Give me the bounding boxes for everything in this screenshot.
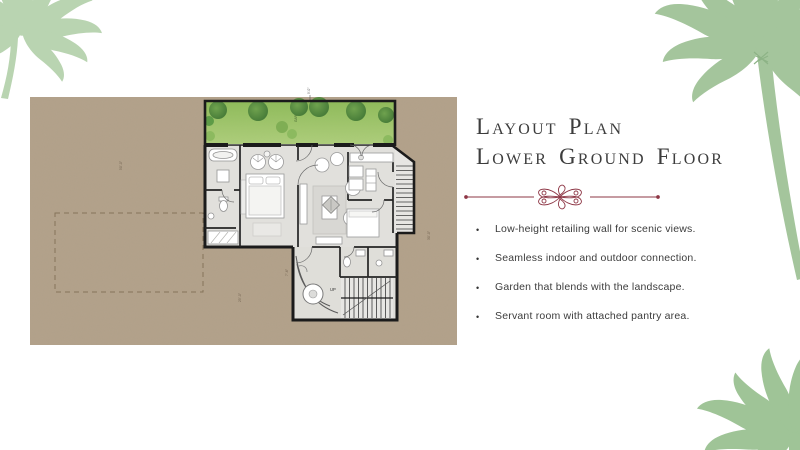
title-line-1: Layout Plan — [476, 112, 786, 142]
palm-tree-top-left-icon — [0, 0, 102, 99]
palm-tree-bottom-right-icon — [695, 347, 800, 450]
feature-text: Low-height retailing wall for scenic vie… — [495, 222, 696, 237]
bullet-icon: • — [476, 280, 484, 296]
title-line-2: Lower Ground Floor — [476, 142, 786, 172]
dimension-label: 25'-0" — [238, 293, 242, 302]
list-item: • Servant room with attached pantry area… — [476, 309, 746, 325]
bullet-icon: • — [476, 309, 484, 325]
list-item: • Garden that blends with the landscape. — [476, 280, 746, 296]
slide: 50'-0" 25'-0" 30'-0" 7'-6" GARDEN 9'- — [0, 0, 800, 450]
dimension-label: 7'-6" — [285, 269, 289, 276]
feature-text: Garden that blends with the landscape. — [495, 280, 685, 295]
bullet-icon: • — [476, 222, 484, 238]
dimension-label: 50'-0" — [119, 161, 123, 170]
feature-text: Seamless indoor and outdoor connection. — [495, 251, 697, 266]
feature-text: Servant room with attached pantry area. — [495, 309, 690, 324]
up-label: UP — [330, 287, 336, 292]
servant-room-bed — [347, 209, 379, 237]
page-title: Layout Plan Lower Ground Floor — [476, 112, 786, 172]
list-item: • Seamless indoor and outdoor connection… — [476, 251, 746, 267]
feature-list: • Low-height retailing wall for scenic v… — [476, 222, 746, 338]
flourish-ornament-icon — [539, 185, 582, 209]
bullet-icon: • — [476, 251, 484, 267]
dimension-label: 9'-0" — [307, 88, 311, 94]
dimension-label: 30'-0" — [427, 231, 431, 240]
list-item: • Low-height retailing wall for scenic v… — [476, 222, 746, 238]
garden-strip: GARDEN — [204, 97, 395, 145]
decorative-divider — [462, 180, 662, 214]
